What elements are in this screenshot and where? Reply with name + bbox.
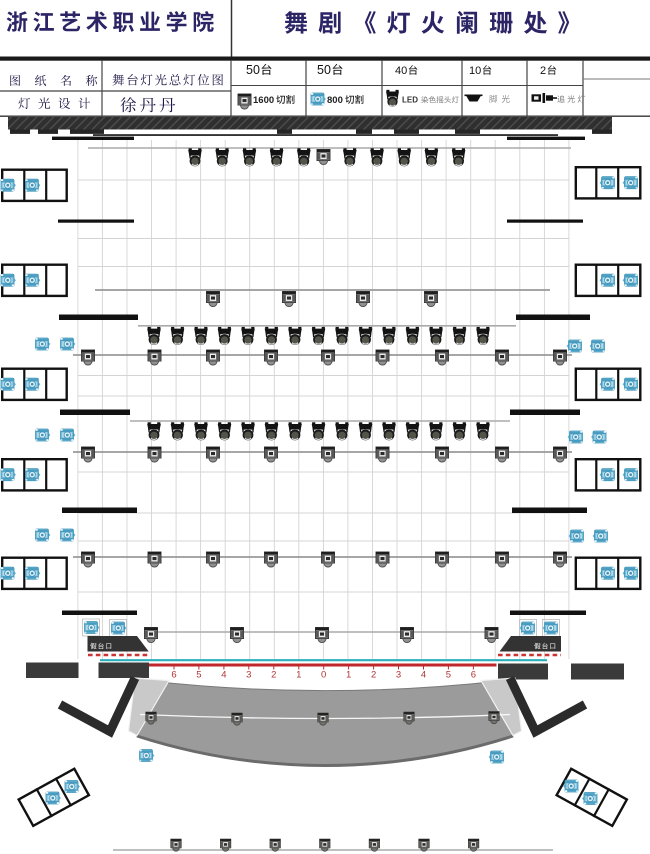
- svg-text:6: 6: [171, 670, 176, 681]
- svg-text:2: 2: [371, 670, 376, 681]
- svg-text:50: 50: [317, 63, 331, 77]
- svg-text:3: 3: [396, 670, 401, 681]
- svg-text:2: 2: [271, 670, 276, 681]
- svg-text:1600: 1600: [253, 95, 274, 106]
- svg-text:4: 4: [221, 670, 226, 681]
- svg-text:0: 0: [321, 670, 326, 681]
- svg-text:1: 1: [346, 670, 351, 681]
- svg-text:10: 10: [469, 65, 481, 77]
- svg-text:3: 3: [246, 670, 251, 681]
- svg-text:40: 40: [395, 65, 407, 77]
- svg-text:6: 6: [471, 670, 476, 681]
- svg-text:800: 800: [327, 95, 343, 106]
- svg-text:2: 2: [540, 65, 546, 77]
- svg-text:LED: LED: [402, 96, 418, 105]
- svg-text:50: 50: [246, 63, 260, 77]
- svg-text:1: 1: [296, 670, 301, 681]
- svg-text:5: 5: [196, 670, 201, 681]
- svg-text:4: 4: [421, 670, 426, 681]
- svg-text:5: 5: [446, 670, 451, 681]
